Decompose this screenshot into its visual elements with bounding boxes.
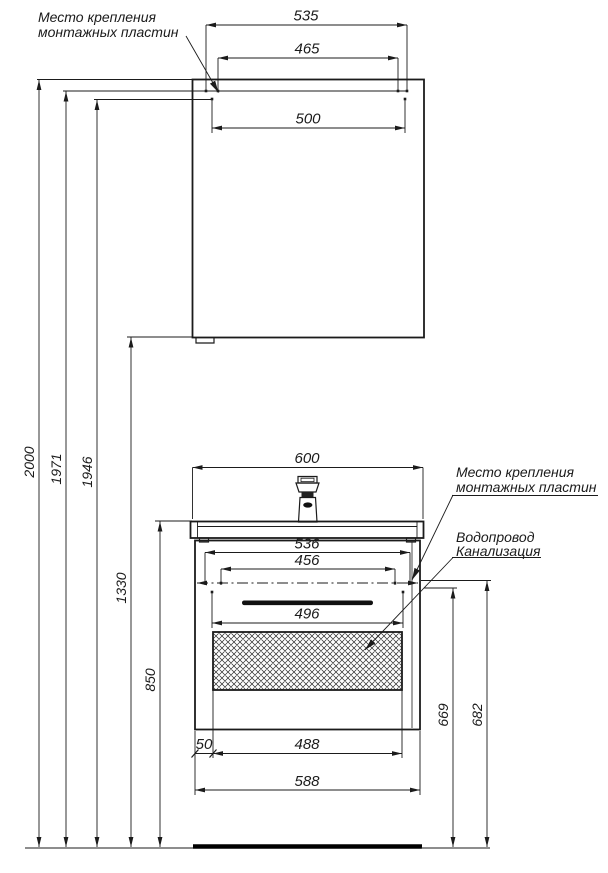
label-plumbing-line2: Канализация [456,543,541,559]
dim-600-label: 600 [294,450,320,467]
mount-point [409,582,412,585]
technical-drawing: 535 465 500 2000 1971 1946 1330 850 600 … [0,0,608,873]
dim-1971-label: 1971 [48,453,64,484]
dim-535-label: 535 [293,8,319,25]
label-mounting-right-line1: Место крепления [456,464,575,480]
mount-point [204,582,207,585]
dimension-lines [25,25,598,848]
mount-point [404,98,407,101]
label-mounting-right-line2: монтажных пластин [456,479,597,495]
dim-488-label: 488 [294,736,320,753]
mount-point [402,591,405,594]
mount-point [220,582,223,585]
dim-456-label: 456 [294,552,320,569]
dim-2000-label: 2000 [21,446,37,478]
drawer-handle [242,601,373,606]
faucet-body [299,498,318,523]
vanity-unit [191,477,424,730]
dim-588-label: 588 [294,773,320,790]
technical-drawing-canvas: 535 465 500 2000 1971 1946 1330 850 600 … [0,0,608,873]
label-mounting-top-line2: монтажных пластин [38,24,179,40]
mount-point [394,582,397,585]
dim-850-label: 850 [142,668,158,692]
faucet-neck [302,492,314,498]
dim-536-label: 536 [294,536,320,553]
dim-465-label: 465 [294,41,320,58]
dim-496-label: 496 [294,606,320,623]
faucet-icon [296,477,319,523]
faucet-handle-body [296,483,319,492]
leader-plumbing [365,558,453,651]
faucet-spout-mark [303,502,312,507]
label-mounting-top-line1: Место крепления [38,9,157,25]
dim-500-label: 500 [295,111,321,128]
dim-50-label: 50 [196,736,213,753]
mirror-cabinet-bottom-tab [196,338,214,343]
dim-682-label: 682 [469,703,485,727]
dim-1330-label: 1330 [113,572,129,603]
mount-point [211,591,214,594]
faucet-handle-inner [301,478,314,481]
dim-669-label: 669 [435,703,451,727]
dim-1946-label: 1946 [79,456,95,487]
leader-mounting-top [186,36,219,93]
